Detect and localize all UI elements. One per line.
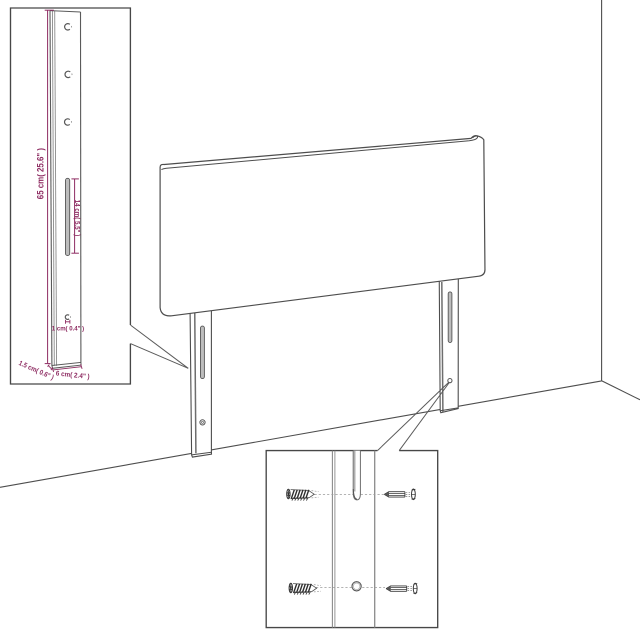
svg-text:1 cm( 0.4" ): 1 cm( 0.4" ) — [52, 326, 84, 333]
svg-text:14 cm( 5.5" ): 14 cm( 5.5" ) — [73, 200, 80, 237]
svg-text:65 cm( 25.6" ): 65 cm( 25.6" ) — [35, 148, 45, 199]
